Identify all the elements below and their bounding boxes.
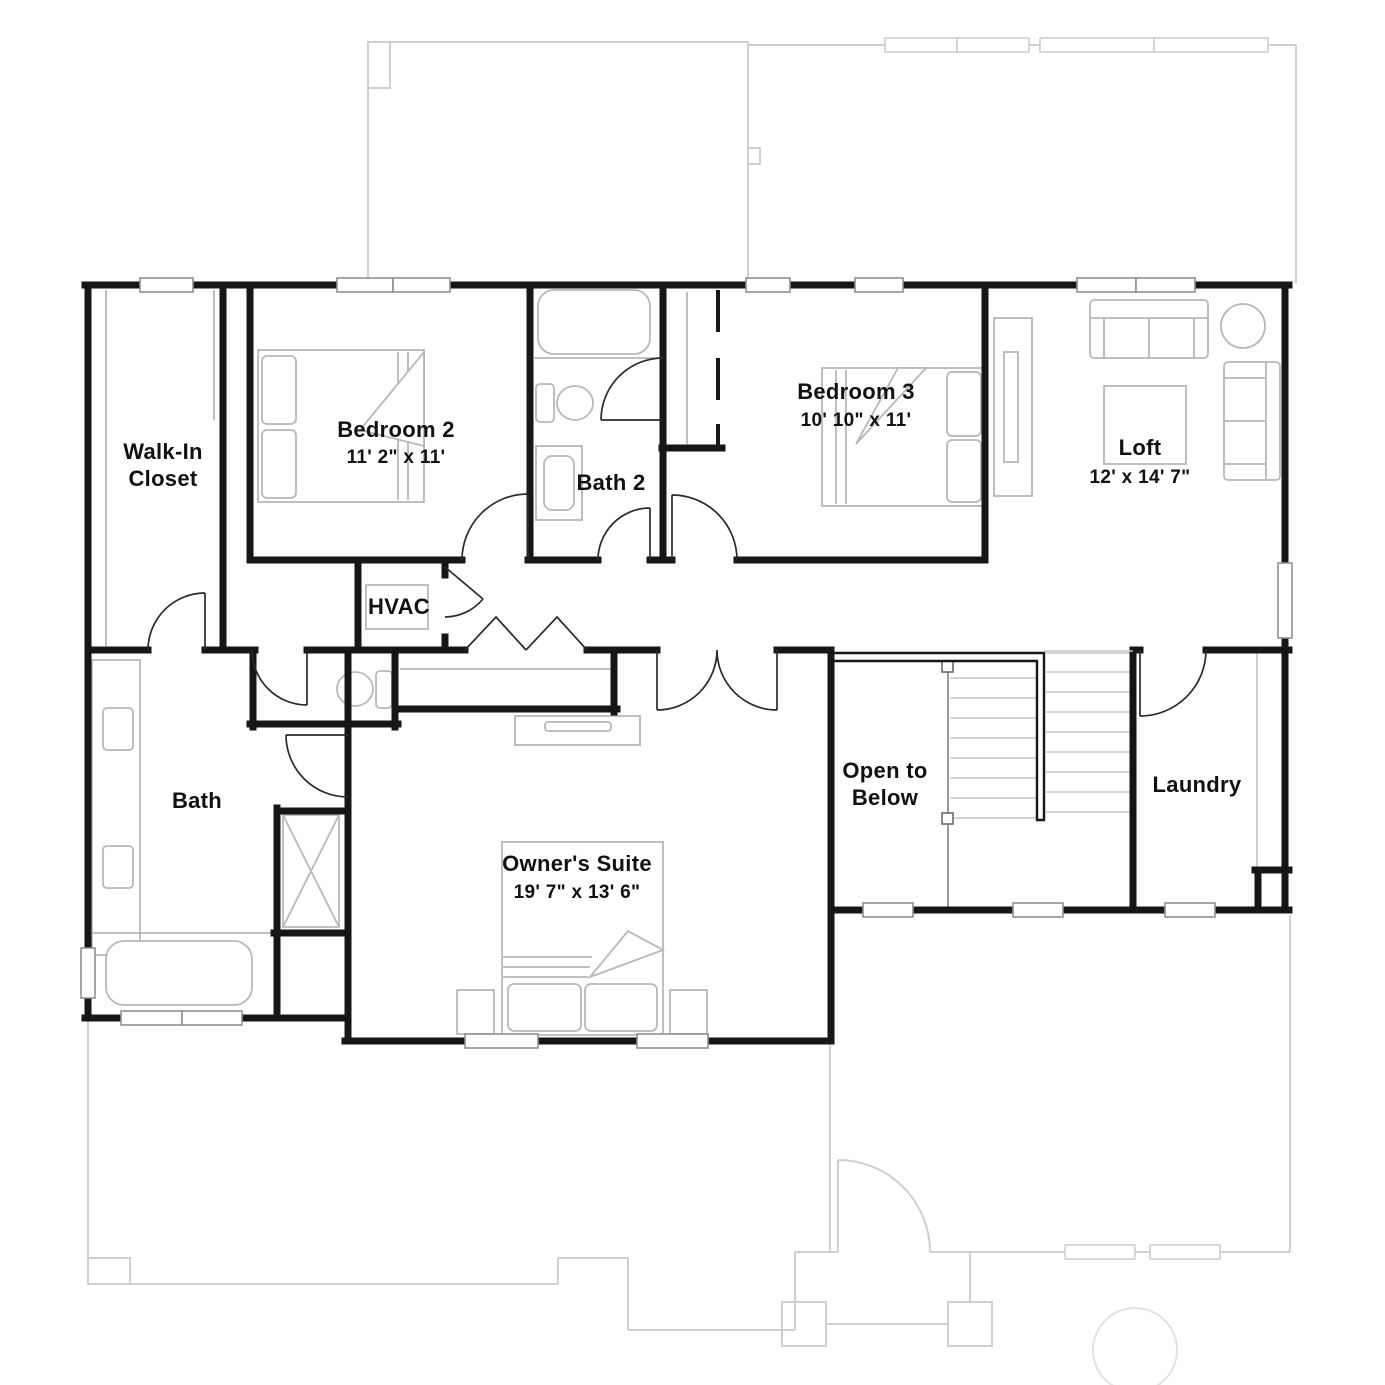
walk-in-closet-door bbox=[148, 593, 205, 650]
stair-treads-left-flight bbox=[950, 678, 1036, 818]
window bbox=[121, 1011, 182, 1025]
ghost-window bbox=[1065, 1245, 1135, 1259]
bath2-hall-door bbox=[598, 508, 650, 560]
ghost-porch-column bbox=[782, 1302, 826, 1346]
ghost-window bbox=[1154, 38, 1268, 52]
label-walk-in-closet-line1: Walk-In bbox=[123, 439, 203, 464]
window bbox=[1077, 278, 1136, 292]
dims-bedroom2: 11' 2" x 11' bbox=[347, 447, 446, 468]
bedroom2-door bbox=[462, 494, 528, 560]
window bbox=[465, 1034, 538, 1048]
ghost-porch-column bbox=[948, 1302, 992, 1346]
window bbox=[81, 948, 95, 998]
bath-door bbox=[286, 735, 348, 797]
hall-closet-bifold-doors bbox=[465, 617, 587, 650]
window bbox=[337, 278, 393, 292]
window bbox=[637, 1034, 708, 1048]
window bbox=[1136, 278, 1195, 292]
ghost-lower-left-walls bbox=[88, 1018, 838, 1330]
label-bedroom2: Bedroom 2 bbox=[337, 417, 455, 442]
ghost-window bbox=[885, 38, 957, 52]
window bbox=[746, 278, 790, 292]
laundry-door bbox=[1140, 650, 1206, 716]
label-bath: Bath bbox=[172, 788, 222, 813]
ghost-window bbox=[957, 38, 1029, 52]
bath2-door bbox=[601, 358, 663, 420]
label-loft: Loft bbox=[1119, 435, 1162, 460]
ghost-window bbox=[1150, 1245, 1220, 1259]
loft-sofa bbox=[1090, 300, 1208, 358]
label-open-to-below-line2: Below bbox=[852, 785, 919, 810]
owners-nightstand bbox=[670, 990, 707, 1034]
second-floor-plan: Walk-In Closet Bedroom 2 11' 2" x 11' Ba… bbox=[0, 0, 1385, 1385]
window bbox=[1165, 903, 1215, 917]
dims-owners-suite: 19' 7" x 13' 6" bbox=[514, 882, 641, 903]
ghost-table-circle bbox=[1093, 1308, 1177, 1385]
loft-loveseat bbox=[1224, 362, 1280, 480]
window bbox=[393, 278, 450, 292]
window bbox=[182, 1011, 242, 1025]
bedroom3-door bbox=[672, 495, 737, 560]
label-bedroom3: Bedroom 3 bbox=[797, 379, 915, 404]
bath2-tub bbox=[534, 290, 660, 358]
loft-round-table bbox=[1221, 304, 1265, 348]
bath-vanity bbox=[92, 660, 140, 955]
furniture-layer bbox=[92, 290, 1280, 1035]
dims-loft: 12' x 14' 7" bbox=[1090, 467, 1191, 488]
ghost-window bbox=[1040, 38, 1154, 52]
window bbox=[1013, 903, 1063, 917]
newel-post bbox=[942, 813, 953, 824]
owners-dresser bbox=[515, 716, 640, 745]
floor-plan-page: Walk-In Closet Bedroom 2 11' 2" x 11' Ba… bbox=[0, 0, 1385, 1385]
ghost-column-base bbox=[88, 1258, 130, 1284]
bath2-vanity-sink bbox=[536, 446, 582, 520]
bath-tub bbox=[92, 933, 274, 1005]
label-hvac: HVAC bbox=[368, 594, 430, 619]
loft-media-console bbox=[994, 318, 1032, 496]
label-owners-suite: Owner's Suite bbox=[502, 851, 652, 876]
label-walk-in-closet-line2: Closet bbox=[128, 466, 197, 491]
window bbox=[863, 903, 913, 917]
label-open-to-below-line1: Open to bbox=[842, 758, 927, 783]
stair-treads-right-flight bbox=[1046, 653, 1131, 812]
bath2-toilet bbox=[536, 384, 593, 422]
window bbox=[855, 278, 903, 292]
hvac-closet-door bbox=[445, 567, 483, 617]
ghost-wall-jog bbox=[748, 148, 760, 164]
water-closet-door bbox=[252, 650, 307, 705]
owners-nightstand bbox=[457, 990, 494, 1034]
window bbox=[1278, 563, 1292, 638]
label-laundry: Laundry bbox=[1153, 772, 1242, 797]
window bbox=[140, 278, 193, 292]
ghost-entry-door-and-porch-wall bbox=[838, 915, 1290, 1252]
ghost-corner-tab bbox=[368, 42, 390, 88]
dims-bedroom3: 10' 10" x 11' bbox=[801, 410, 912, 431]
owners-suite-double-door bbox=[657, 650, 777, 710]
bath-shower bbox=[283, 815, 339, 927]
label-bath2: Bath 2 bbox=[576, 470, 645, 495]
newel-post bbox=[942, 661, 953, 672]
ghost-upper-walls bbox=[368, 42, 1296, 283]
